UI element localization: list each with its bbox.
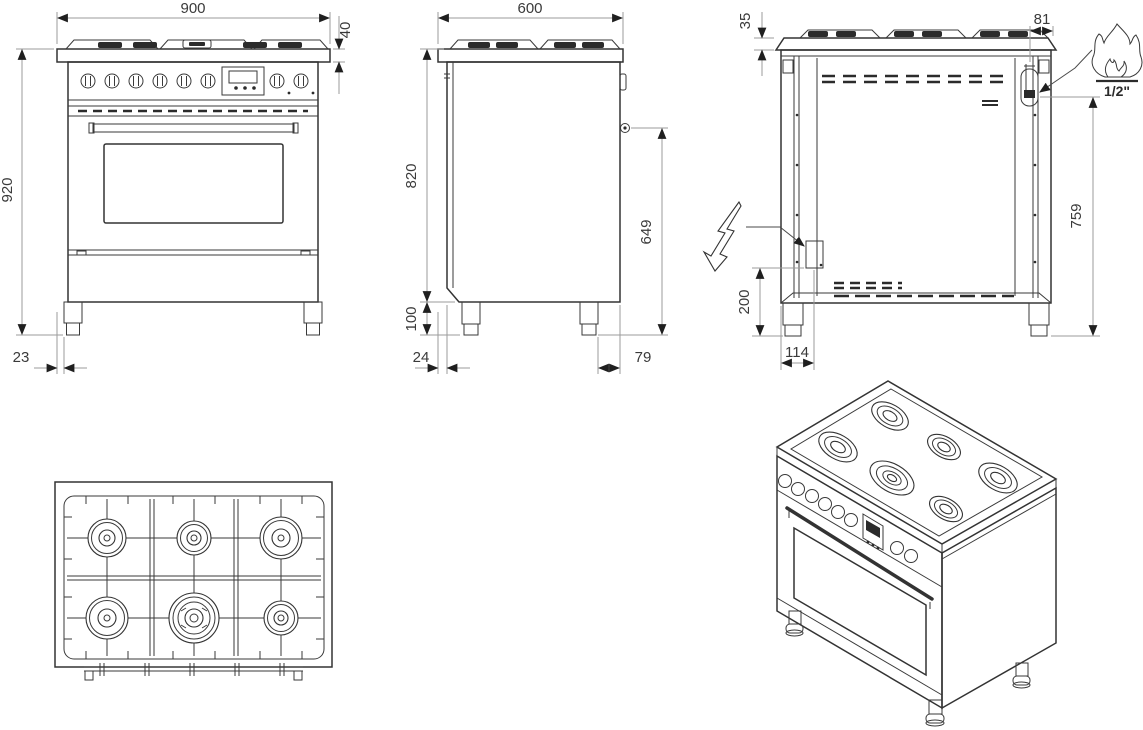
oven-window: [104, 144, 283, 223]
rear-gas-height-dim: 759: [1068, 203, 1085, 228]
burner-top-left: [88, 519, 126, 557]
gas-connection-size-label: 1/2": [1104, 83, 1130, 99]
control-knobs: [81, 74, 314, 94]
rear-gas-offset-dim: 81: [1034, 11, 1051, 28]
side-body-height-dim: 820: [403, 163, 420, 188]
side-range-outline: [438, 40, 630, 335]
top-view: [55, 482, 332, 680]
side-gas-inlet-height-dim: 649: [638, 219, 655, 244]
screw-dots: [796, 114, 1037, 264]
burner-bottom-right: [264, 601, 298, 635]
front-legs: [64, 302, 322, 335]
oven-display: [222, 67, 264, 95]
oven-door-handle: [89, 123, 298, 133]
side-plinth-height-dim: 100: [403, 306, 420, 331]
technical-drawing-page: 900 40 920 23: [0, 0, 1143, 730]
iso-oven-display: [863, 514, 883, 550]
side-legs: [462, 302, 598, 335]
iso-door-handle: [787, 508, 932, 599]
side-front-overhang-dim: 24: [413, 349, 430, 366]
iso-legs: [786, 611, 1030, 726]
flame-icon: [1092, 24, 1142, 81]
front-overall-height-dim: 920: [0, 177, 16, 202]
rear-top-edge-dim: 35: [737, 13, 754, 30]
rear-legs: [783, 303, 1049, 336]
iso-oven-window: [794, 528, 926, 675]
burner-wok-center: [169, 593, 219, 643]
dimensional-drawing: 900 40 920 23: [0, 0, 1143, 730]
rear-dimensions: 35 81 759 200 114: [736, 11, 1100, 370]
rear-electric-height-dim: 200: [736, 289, 753, 314]
side-overall-depth-dim: 600: [517, 0, 542, 17]
front-overall-width-dim: 900: [180, 0, 205, 17]
rear-spacer-bracket: [620, 74, 626, 90]
front-view: 900 40 920 23: [0, 0, 354, 374]
lightning-bolt-icon: [704, 202, 741, 271]
burner-top-middle: [177, 521, 211, 555]
rear-electric-offset-dim: 114: [785, 344, 809, 361]
burner-top-right: [260, 517, 302, 559]
side-view: 600 820 100 649 24 79: [403, 0, 668, 374]
side-dimensions: 600 820 100 649 24 79: [403, 0, 668, 374]
burner-bottom-left: [86, 597, 128, 639]
front-dimensions: 900 40 920 23: [0, 0, 354, 374]
front-side-clearance-dim: 23: [13, 349, 30, 366]
front-cooktop-edge-dim: 40: [337, 22, 354, 39]
rear-range-outline: [776, 30, 1056, 336]
electrical-junction-box: [806, 241, 823, 268]
cooktop-front-trim: [84, 663, 303, 680]
gas-inlet-rear: [1021, 64, 1038, 106]
side-rear-leg-inset-dim: 79: [635, 349, 652, 366]
isometric-view: [777, 381, 1056, 726]
electric-leader-arrow: [746, 227, 804, 246]
rear-view: 1/2" 35 81 759 200 114: [704, 11, 1142, 370]
front-range-outline: [57, 40, 330, 335]
iso-burners: [814, 396, 1023, 527]
